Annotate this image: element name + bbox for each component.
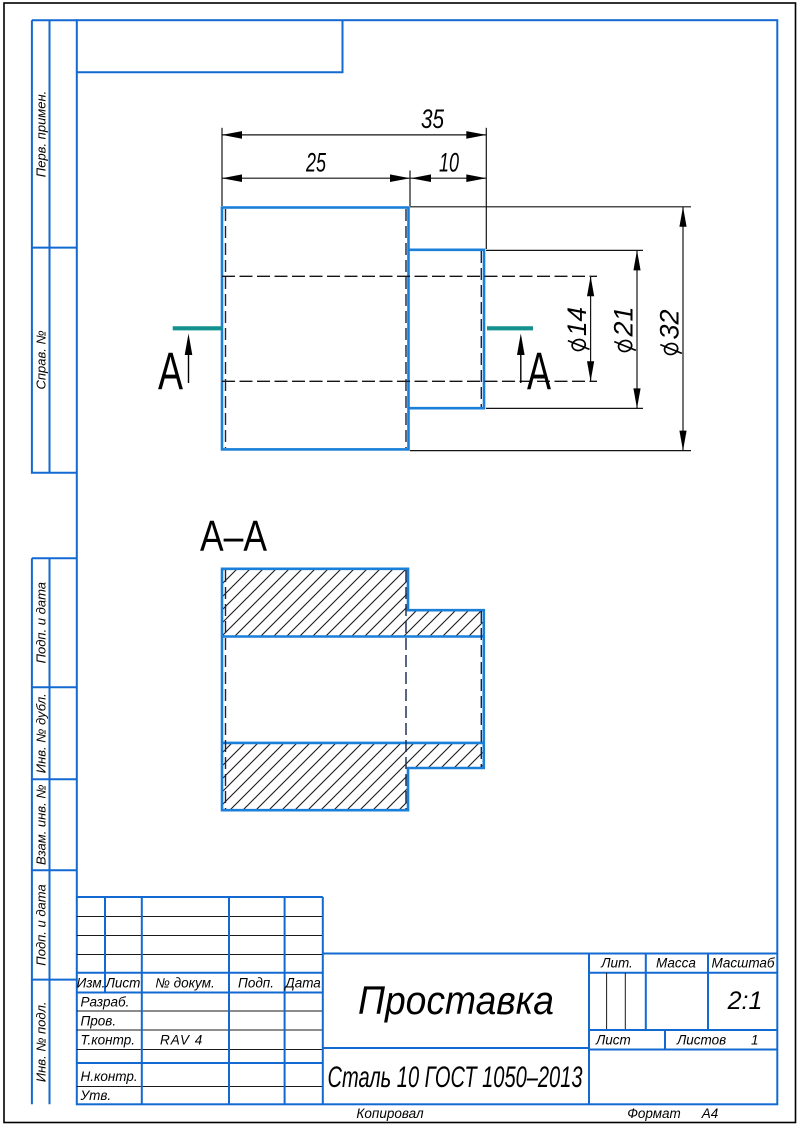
svg-text:14: 14 [562,307,592,336]
svg-text:Справ. №: Справ. № [33,330,48,389]
svg-text:Инв. № дубл.: Инв. № дубл. [33,693,48,773]
svg-text:Инв. № подл.: Инв. № подл. [33,1001,48,1082]
svg-text:21: 21 [609,307,639,338]
svg-text:1: 1 [751,1033,759,1048]
svg-text:Подп. и дата: Подп. и дата [33,884,48,965]
svg-text:A–A: A–A [200,512,268,561]
svg-text:Взам. инв. №: Взам. инв. № [33,785,48,865]
svg-text:Масштаб: Масштаб [711,956,774,971]
svg-text:Лист: Лист [595,1033,631,1048]
svg-text:35: 35 [421,104,445,134]
svg-text:A: A [527,342,551,401]
svg-text:Дата: Дата [283,976,321,991]
svg-text:A: A [158,342,183,401]
svg-text:Проставка: Проставка [358,979,554,1023]
svg-text:Листов: Листов [676,1033,726,1048]
svg-text:Копировал: Копировал [356,1106,424,1121]
svg-text:10: 10 [439,148,459,178]
svg-text:Т.контр.: Т.контр. [81,1033,135,1048]
svg-text:Подп.: Подп. [238,976,274,991]
svg-text:Пров.: Пров. [81,1014,117,1029]
svg-text:Утв.: Утв. [80,1088,112,1103]
svg-text:Масса: Масса [656,956,696,971]
svg-text:Формат: Формат [627,1106,681,1121]
svg-text:Н.контр.: Н.контр. [81,1069,138,1084]
svg-text:№ докум.: № докум. [155,976,214,991]
svg-text:Изм.: Изм. [77,976,106,991]
svg-text:Разраб.: Разраб. [81,995,130,1010]
svg-text:Лист: Лист [105,976,141,991]
svg-text:Сталь 10 ГОСТ 1050–2013: Сталь 10 ГОСТ 1050–2013 [328,1061,583,1094]
svg-text:Перв. примен.: Перв. примен. [33,91,48,177]
svg-text:А4: А4 [701,1106,719,1121]
svg-text:RAV 4: RAV 4 [160,1033,203,1048]
svg-text:32: 32 [655,310,685,340]
svg-text:Подп. и дата: Подп. и дата [33,582,48,663]
svg-text:25: 25 [305,148,326,178]
svg-text:2:1: 2:1 [727,987,763,1015]
svg-text:Лит.: Лит. [600,956,633,971]
